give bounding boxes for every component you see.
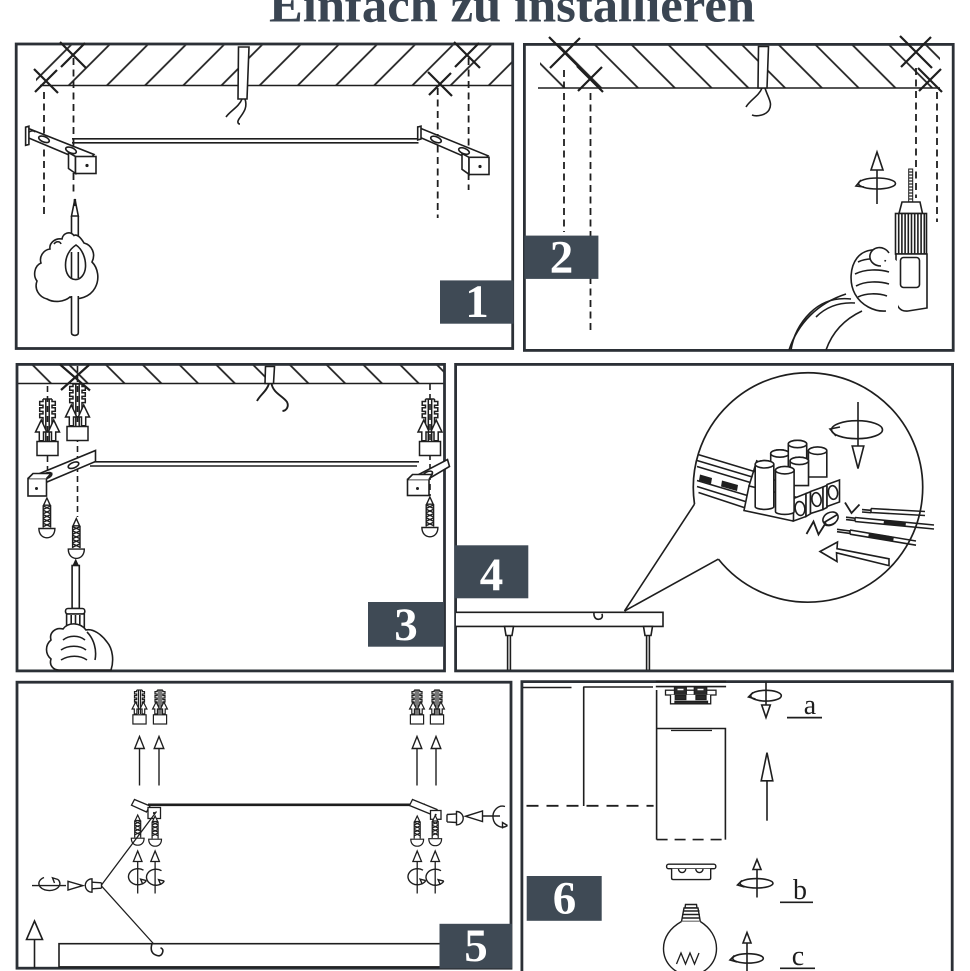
svg-text:6: 6 [553,873,577,925]
svg-text:5: 5 [464,920,488,971]
svg-text:Einfach zu installieren: Einfach zu installieren [269,0,755,33]
svg-text:a: a [804,690,817,721]
svg-text:c: c [792,941,804,971]
svg-text:3: 3 [394,599,418,651]
svg-text:2: 2 [550,232,574,284]
svg-text:1: 1 [465,276,489,328]
svg-text:b: b [793,875,807,906]
svg-text:4: 4 [480,549,504,601]
